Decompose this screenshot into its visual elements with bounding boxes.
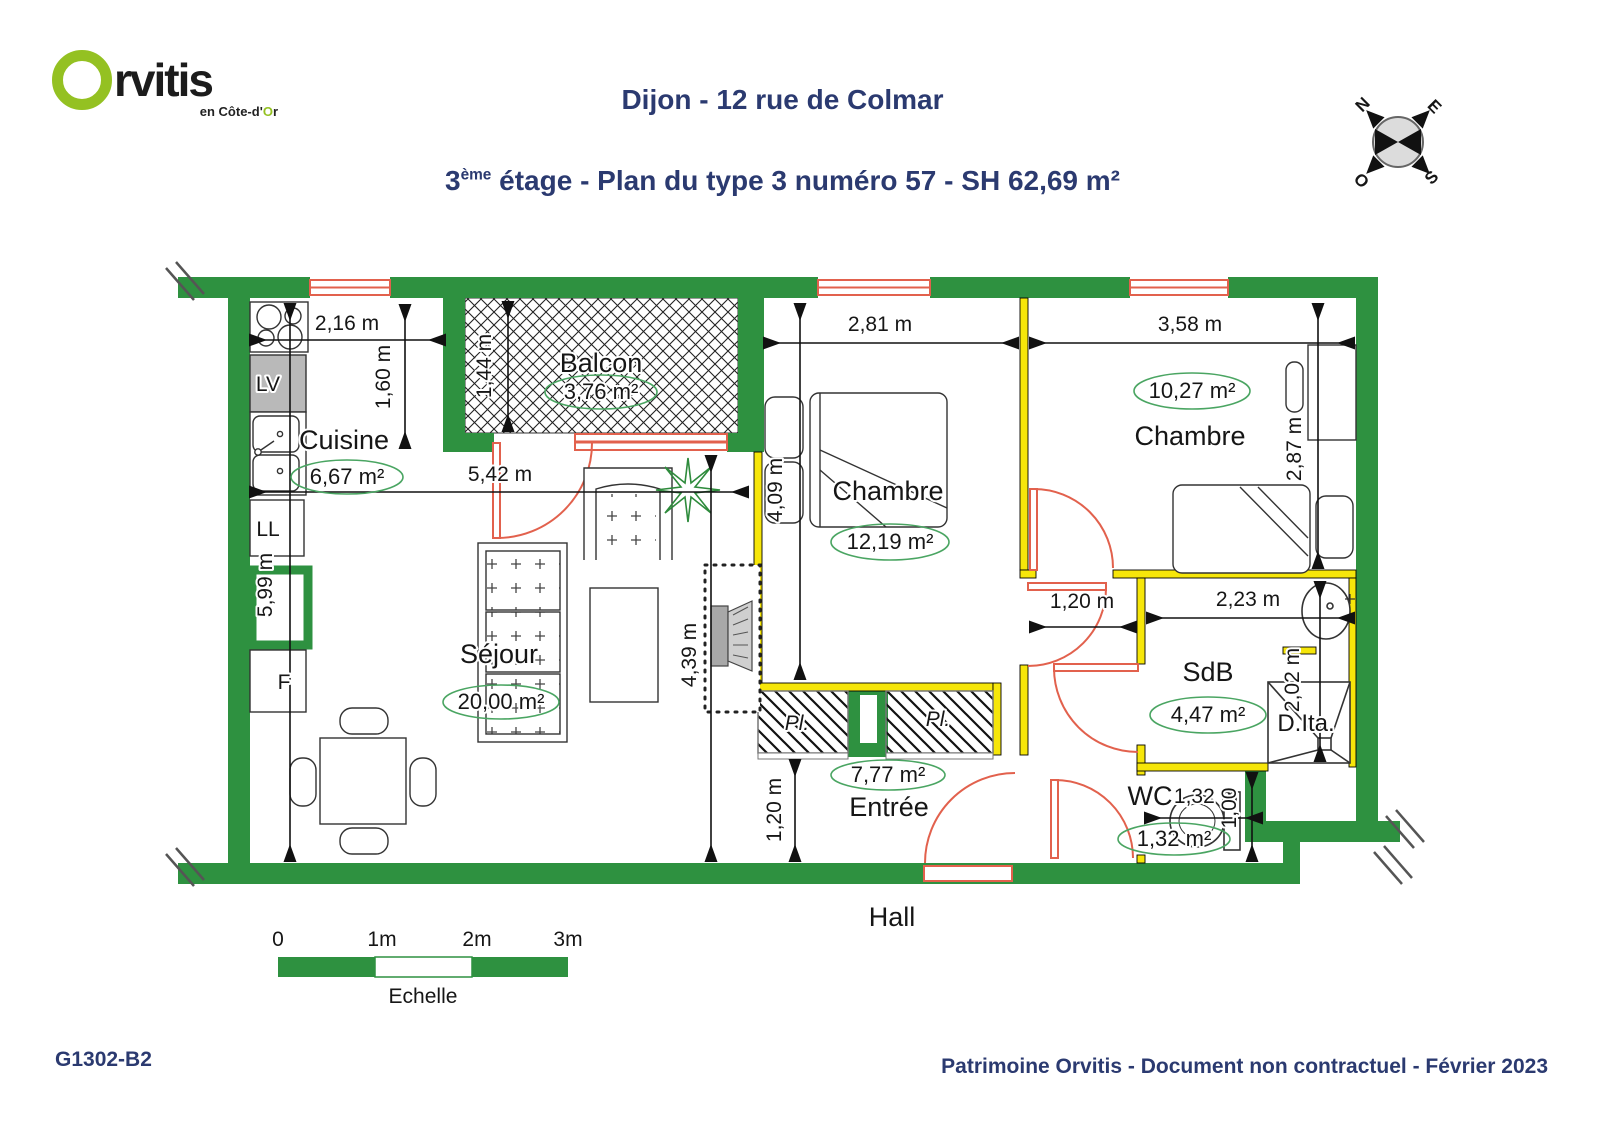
floor-plan-drawing: N E O S — [0, 0, 1600, 1131]
scale-bar: 0 1m 2m 3m Echelle — [272, 928, 582, 1008]
room-label-hall: Hall — [869, 902, 916, 932]
kitchen-window — [310, 277, 390, 298]
dim-wc-depth: 1,00 — [1218, 788, 1241, 829]
dim-sejour-width: 5,42 m — [468, 463, 532, 486]
pillow-symbol — [1316, 496, 1353, 558]
kitchen-fittings — [250, 302, 308, 712]
room-label-cuisine: Cuisine — [299, 425, 389, 455]
dim-left-height: 5,99 m — [254, 553, 277, 617]
dim-entree-width: 1,20 m — [763, 778, 786, 842]
bedroom1-window — [818, 277, 930, 298]
area-label-wc: 1,32 m² — [1137, 826, 1212, 851]
room-label-sejour: Séjour — [460, 639, 538, 669]
washbasin-symbol — [1302, 583, 1350, 639]
coffee-table-symbol — [590, 588, 658, 702]
chair-symbol — [1286, 362, 1303, 412]
label-fridge: F — [278, 671, 291, 694]
wc-door — [1051, 780, 1133, 858]
dim-sdb-width: 2,23 m — [1216, 588, 1280, 611]
area-label-chambre1: 12,19 m² — [847, 529, 934, 554]
dim-shower-height: 2,02 m — [1281, 648, 1304, 712]
area-label-balcon: 3,76 m² — [564, 379, 639, 404]
bedroom2-door — [1030, 489, 1113, 570]
scale-tick-2m: 2m — [462, 928, 491, 951]
room-label-entree: Entrée — [849, 792, 929, 822]
scale-tick-0: 0 — [272, 928, 284, 951]
floor-plan-page: rvitis en Côte-d'Or Dijon - 12 rue de Co… — [0, 0, 1600, 1131]
area-label-sdb: 4,47 m² — [1171, 702, 1246, 727]
balcony-window — [575, 434, 727, 450]
chair-symbol — [410, 758, 436, 806]
dim-sejour-height: 4,39 m — [678, 623, 701, 687]
desk-symbol — [1308, 345, 1356, 440]
room-label-chambre1: Chambre — [832, 476, 943, 506]
room-label-wc: WC — [1128, 781, 1173, 811]
label-washing-machine: LL — [256, 518, 279, 541]
room-label-balcon: Balcon — [560, 348, 643, 378]
single-bed-symbol — [1173, 485, 1310, 573]
area-label-cuisine: 6,67 m² — [310, 464, 385, 489]
compass-rose-icon: N E O S — [1350, 94, 1445, 192]
compass-west-label: O — [1350, 169, 1373, 192]
bedroom2-window — [1130, 277, 1228, 298]
dim-corridor-width: 1,20 m — [1050, 590, 1114, 613]
dim-chambre1-width: 2,81 m — [848, 313, 912, 336]
structural-column — [848, 683, 888, 757]
chair-symbol — [340, 828, 388, 854]
tv-symbol — [711, 606, 728, 666]
chair-symbol — [340, 708, 388, 734]
label-closet-right: Pl. — [926, 708, 951, 731]
pillow-symbol — [765, 397, 803, 458]
room-label-douche: D.Ita. — [1277, 710, 1334, 737]
room-label-sdb: SdB — [1182, 657, 1233, 687]
dim-chambre2-height: 2,87 m — [1283, 417, 1306, 481]
balcony-door — [493, 443, 592, 538]
bathroom-door — [1054, 664, 1138, 752]
bedroom1-furniture — [765, 393, 947, 527]
tv-divider-wall — [705, 565, 760, 712]
area-label-entree: 7,77 m² — [851, 762, 926, 787]
scale-tick-3m: 3m — [553, 928, 582, 951]
chair-symbol — [290, 758, 316, 806]
area-label-chambre2: 10,27 m² — [1149, 378, 1236, 403]
dining-table-symbol — [320, 738, 406, 824]
dim-chambre2-width: 3,58 m — [1158, 313, 1222, 336]
label-closet-left: Pl. — [785, 712, 810, 735]
scale-tick-1m: 1m — [367, 928, 396, 951]
scale-bar-label: Echelle — [389, 985, 458, 1008]
dim-kitchen-width: 2,16 m — [315, 312, 379, 335]
double-bed-symbol — [810, 393, 947, 527]
area-label-sejour: 20,00 m² — [458, 689, 545, 714]
dim-chambre1-height: 4,09 m — [764, 458, 787, 522]
label-dishwasher: LV — [256, 373, 280, 396]
room-label-chambre2: Chambre — [1134, 421, 1245, 451]
dim-kitchen-depth: 1,60 m — [372, 345, 395, 409]
dim-balcony-depth: 1,44 m — [473, 334, 496, 398]
